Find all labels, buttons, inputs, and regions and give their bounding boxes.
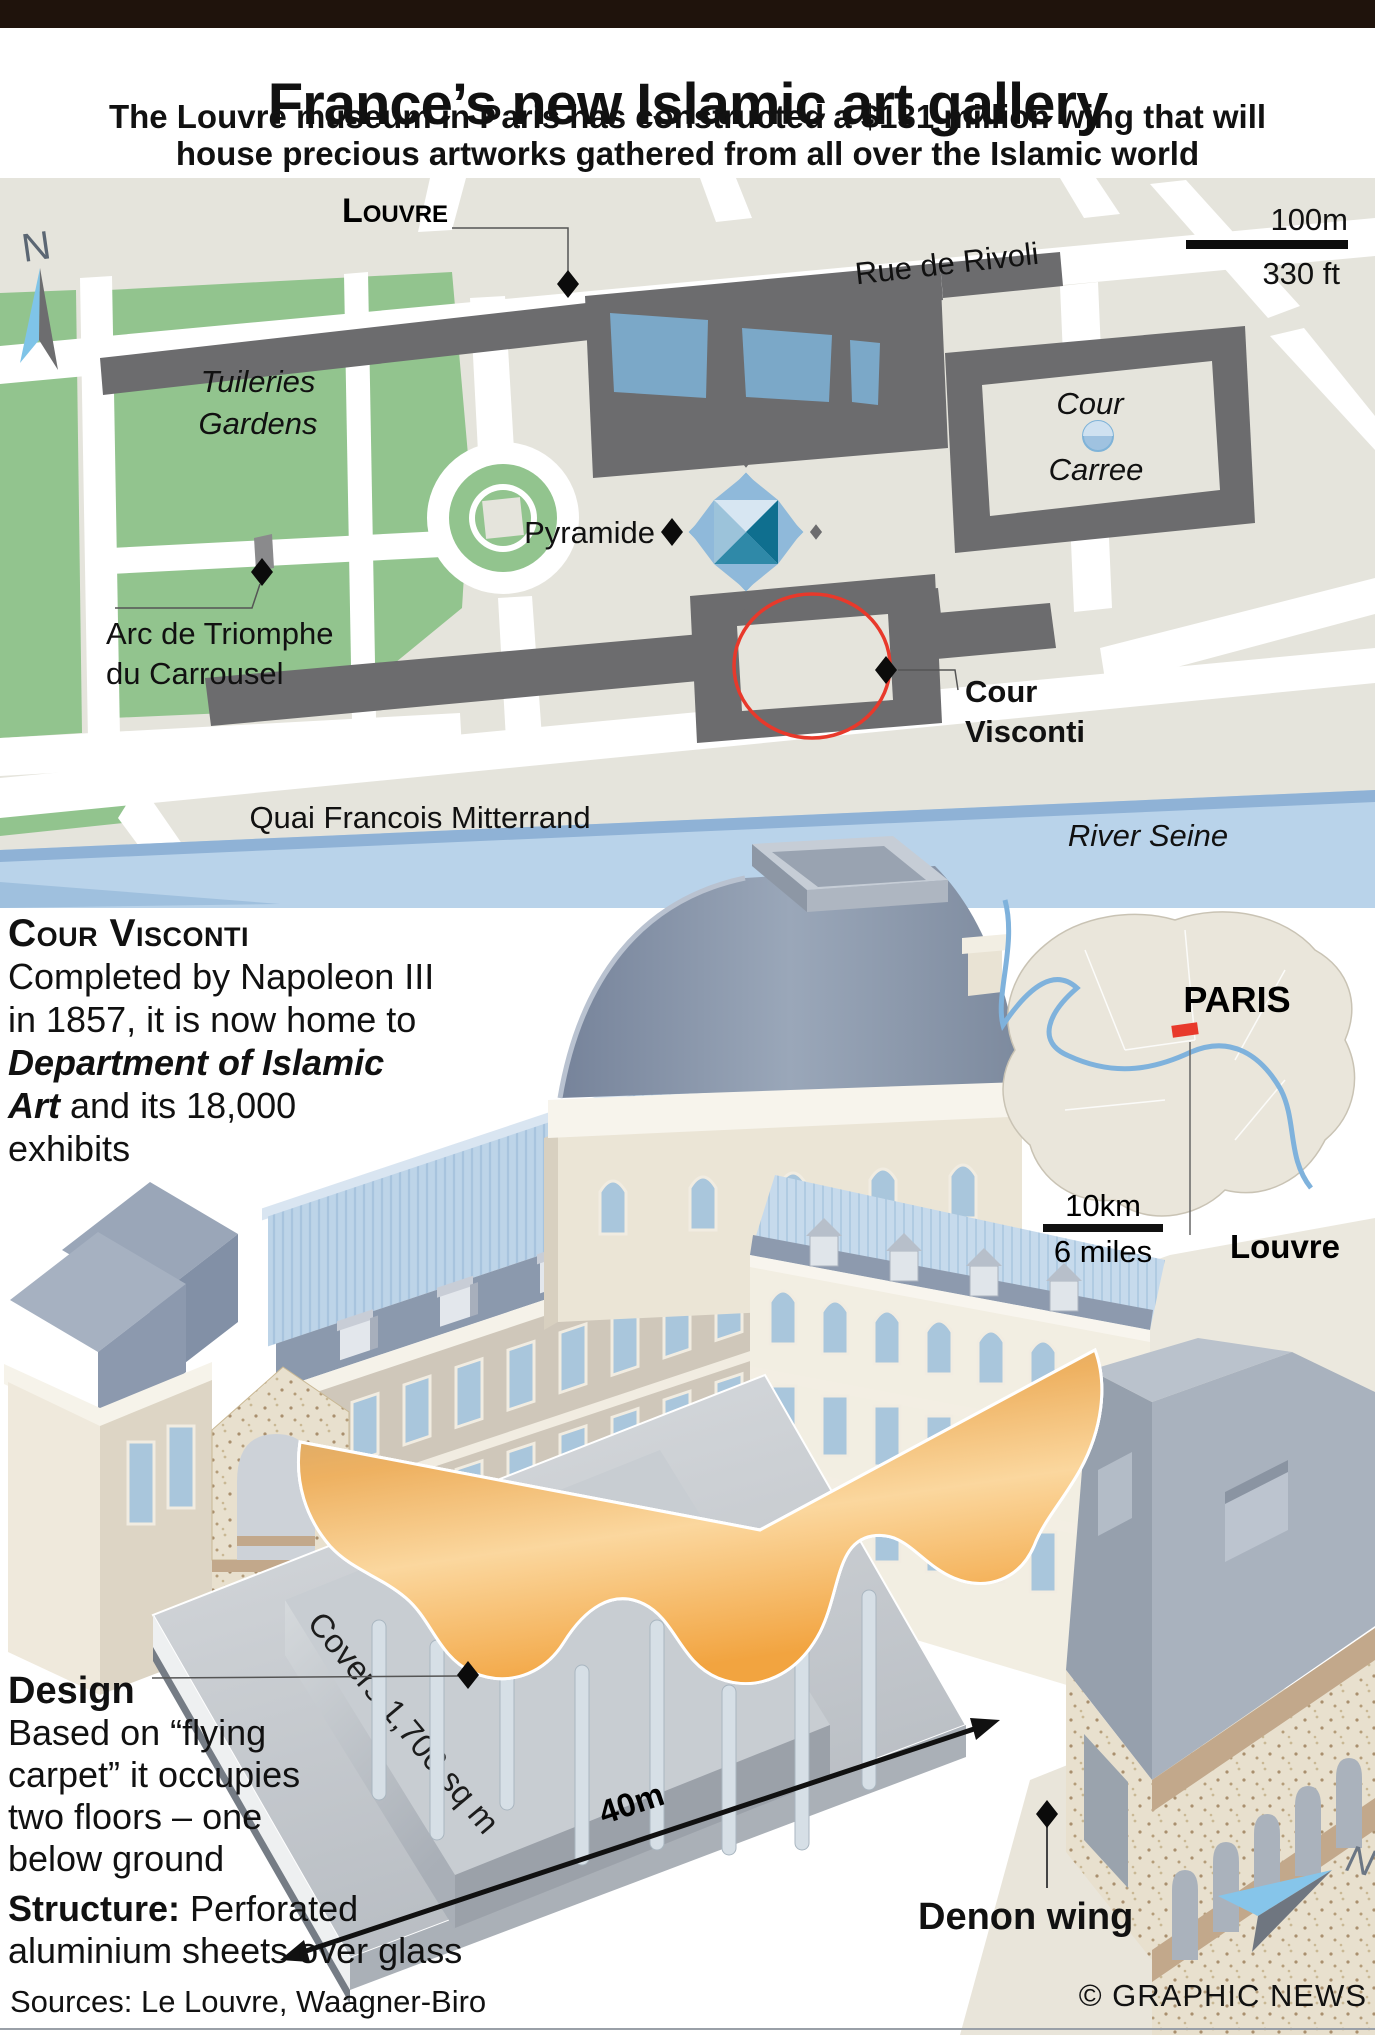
label-visconti-1: Cour [965, 674, 1037, 709]
design-line2: carpet” it occupies [8, 1754, 568, 1796]
louvre-area-map: Louvre Rue de Rivoli Tuileries Gardens P… [0, 178, 1375, 908]
label-cour-carree-1: Cour [1056, 386, 1125, 421]
label-louvre: Louvre [342, 192, 448, 230]
paris-inset-map: PARIS Louvre 10km 6 miles [1001, 900, 1354, 1269]
cour-visconti-note: Cour Visconti Completed by Napoleon III … [8, 912, 488, 1170]
label-tuileries-1: Tuileries [201, 364, 316, 399]
inset-scale-metric: 10km [1065, 1188, 1141, 1223]
note-line5: exhibits [8, 1127, 488, 1170]
cour-visconti-courtyard [737, 614, 893, 711]
note-line4: Art and its 18,000 [8, 1084, 488, 1127]
design-line1: Based on “flying [8, 1712, 568, 1754]
structure-line2: aluminium sheets over glass [8, 1930, 568, 1972]
label-pyramide: Pyramide [524, 515, 655, 550]
label-arc-1: Arc de Triomphe [106, 616, 333, 651]
fountain [1083, 421, 1113, 451]
label-visconti-2: Visconti [965, 714, 1085, 749]
subtitle-line2: house precious artworks gathered from al… [0, 135, 1375, 172]
design-line4: below ground [8, 1838, 568, 1880]
top-bar [0, 0, 1375, 28]
denon-wing-label: Denon wing [918, 1896, 1133, 1939]
design-heading: Design [8, 1670, 568, 1712]
design-block: Design Based on “flying carpet” it occup… [8, 1670, 568, 1972]
label-arc-2: du Carrousel [106, 656, 283, 691]
note-line2: in 1857, it is now home to [8, 998, 488, 1041]
label-paris: PARIS [1183, 979, 1290, 1020]
subtitle: The Louvre museum in Paris has construct… [0, 98, 1375, 172]
inset-scale-bar [1043, 1224, 1163, 1232]
scale-imperial: 330 ft [1262, 256, 1340, 291]
design-line3: two floors – one [8, 1796, 568, 1838]
note-line3: Department of Islamic [8, 1041, 488, 1084]
sources: Sources: Le Louvre, Waagner-Biro [10, 1984, 486, 2020]
subtitle-line1: The Louvre museum in Paris has construct… [0, 98, 1375, 135]
compass-n-icon: N [19, 223, 54, 271]
infographic: France’s new Islamic art gallery The Lou… [0, 0, 1375, 2035]
label-tuileries-2: Gardens [199, 406, 318, 441]
scale-metric: 100m [1270, 202, 1348, 237]
credit: © GRAPHIC NEWS [1079, 1978, 1367, 2014]
structure-line: Structure: Perforated [8, 1888, 568, 1930]
note-line1: Completed by Napoleon III [8, 955, 488, 998]
label-inset-louvre: Louvre [1230, 1228, 1340, 1265]
inset-scale-imperial: 6 miles [1054, 1234, 1152, 1269]
label-cour-carree-2: Carree [1049, 452, 1144, 487]
note-heading: Cour Visconti [8, 912, 488, 955]
bottom-rule [0, 2028, 1375, 2030]
scale-bar [1186, 240, 1348, 249]
